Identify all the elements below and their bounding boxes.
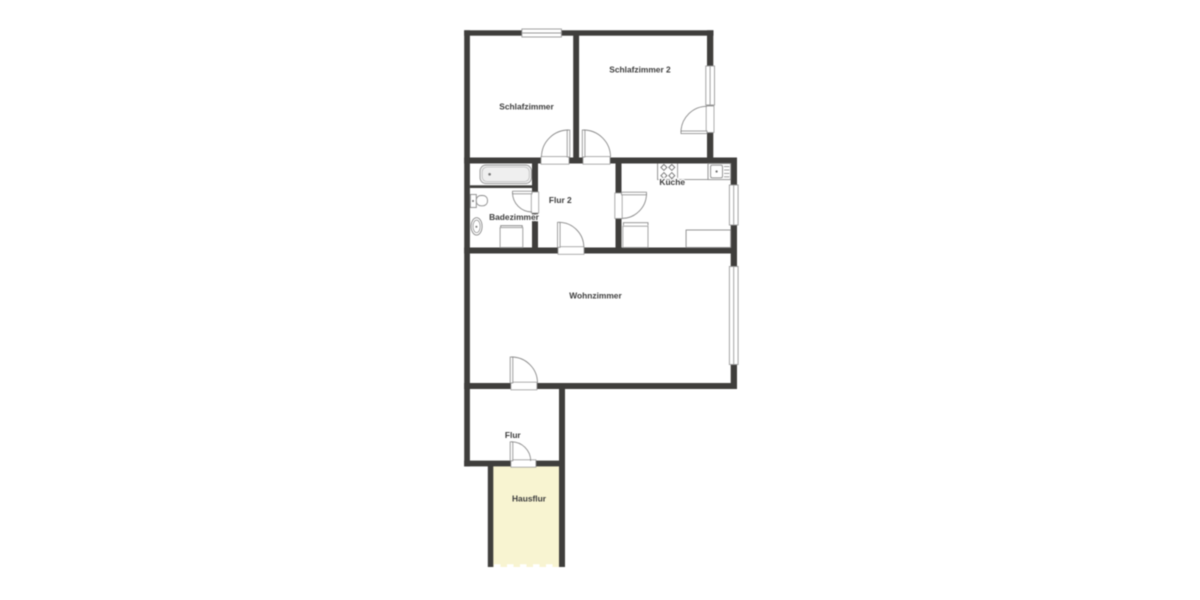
svg-text:Flur: Flur [505, 430, 522, 440]
svg-text:Badezimmer: Badezimmer [489, 212, 540, 222]
svg-text:Küche: Küche [659, 177, 685, 187]
svg-text:Flur 2: Flur 2 [549, 195, 572, 205]
svg-text:Schlafzimmer: Schlafzimmer [499, 102, 554, 112]
svg-text:Wohnzimmer: Wohnzimmer [569, 290, 622, 300]
svg-text:Schlafzimmer 2: Schlafzimmer 2 [609, 64, 671, 74]
svg-text:Hausflur: Hausflur [512, 493, 547, 503]
